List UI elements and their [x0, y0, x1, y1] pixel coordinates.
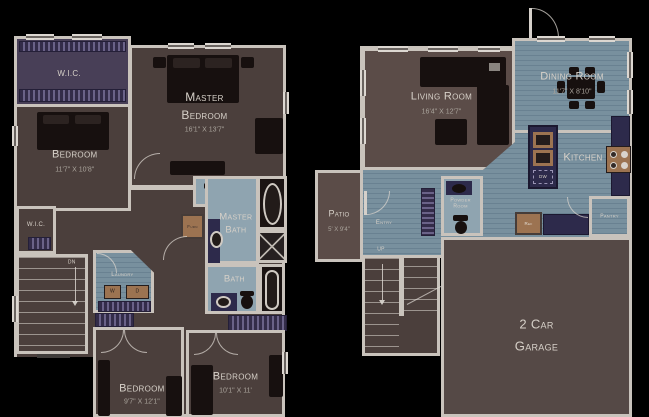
window: [478, 46, 500, 52]
nightstand: [153, 57, 166, 68]
window: [589, 36, 615, 42]
room-label-wic-top: W.I.C.: [57, 70, 81, 78]
sink-icon: [452, 184, 466, 193]
exterior-cutout: [12, 357, 93, 417]
room-label-bath: Bath: [224, 275, 245, 285]
room-label-patio: Patio: [328, 210, 349, 219]
bed: [166, 376, 182, 416]
window: [428, 46, 458, 52]
sink-icon: [210, 231, 223, 248]
pillow: [43, 115, 69, 124]
dryer-letter: D: [136, 290, 140, 295]
window: [282, 352, 288, 374]
pillow: [205, 58, 232, 68]
window: [12, 126, 18, 146]
stairs-up: [362, 255, 440, 356]
window: [205, 43, 231, 49]
bed: [191, 365, 213, 415]
arrow-down-icon: [72, 301, 78, 306]
bathtub-icon: [263, 183, 282, 225]
room-label-master-bath-1: Master: [219, 212, 252, 222]
closet-rack-icon: [98, 301, 151, 312]
furnace-label: Furn: [187, 224, 197, 229]
stairs-arrow-line: [75, 267, 76, 301]
window: [360, 70, 366, 96]
sink-icon: [216, 296, 231, 308]
room-powder: Powder Room: [441, 176, 483, 236]
window: [283, 92, 289, 114]
dresser: [269, 355, 283, 397]
washer-letter: W: [110, 290, 115, 295]
tv-icon: [489, 63, 500, 71]
pillow: [75, 115, 101, 124]
closet-rack-icon: [28, 237, 51, 250]
door-arc: [532, 8, 559, 38]
window: [378, 46, 408, 52]
toilet-icon: [241, 295, 253, 309]
room-label-living: Living Room: [411, 92, 472, 103]
room-bath: Bath: [205, 264, 259, 314]
room-label-powder-1: Powder: [450, 198, 470, 203]
stairs-up-label: UP: [377, 248, 385, 253]
dishwasher-label: DW: [539, 175, 547, 180]
room-label-dining: Dining Room: [540, 72, 604, 83]
sofa: [477, 85, 509, 145]
room-label-garage-1: 2 Car: [519, 317, 553, 330]
ottoman: [435, 119, 467, 145]
window: [537, 36, 565, 42]
refrigerator-label: Ref: [525, 221, 533, 226]
room-bedroom-left: Bedroom 11'7" X 10'8": [14, 104, 131, 211]
dishwasher-icon: DW: [533, 170, 553, 184]
room-wic-small: W.I.C.: [16, 206, 56, 254]
stairs-down: DN: [16, 254, 88, 354]
closet-rack-icon: [19, 41, 126, 52]
stairs-arrow-line: [382, 264, 383, 300]
room-pantry: Pantry: [589, 196, 630, 237]
room-dims-bedroom-br: 10'1" X 11': [219, 387, 252, 394]
room-master-tub: [257, 176, 287, 230]
room-patio: Patio 5' X 9'4": [315, 170, 363, 262]
hall-closet-rack-icon: [228, 315, 287, 331]
arrow-down-icon: [379, 300, 385, 305]
room-label-garage-2: Garage: [515, 340, 558, 353]
room-label-bedroom-left: Bedroom: [52, 150, 97, 161]
shower-icon: [257, 230, 287, 263]
window: [627, 52, 633, 78]
room-label-entry: Entry: [376, 220, 392, 226]
nightstand: [241, 57, 254, 68]
bench: [170, 161, 225, 175]
window: [12, 296, 18, 322]
burner-icon: [610, 162, 617, 169]
coat-closet-rack-icon: [421, 188, 435, 236]
refrigerator-icon: Ref: [515, 212, 542, 235]
dresser: [255, 118, 283, 154]
window: [627, 90, 633, 114]
room-label-master-bedroom-2: Bedroom: [181, 109, 227, 121]
room-label-master-bedroom-1: Master: [185, 91, 223, 103]
window: [26, 34, 54, 40]
burner-icon: [621, 151, 628, 158]
window: [168, 43, 194, 49]
toilet-icon: [455, 221, 467, 234]
room-dims-bedroom-bl: 9'7" X 12'1": [124, 399, 160, 406]
bathtub-icon: [265, 270, 279, 310]
room-label-master-bath-2: Bath: [225, 225, 246, 235]
dresser: [98, 360, 110, 416]
room-dims-bedroom-left: 11'7" X 10'8": [55, 166, 94, 173]
stove-icon: [606, 146, 631, 173]
washer-icon: W: [104, 285, 121, 299]
window: [72, 34, 102, 40]
window: [360, 118, 366, 144]
room-dims-living: 16'4" X 12'7": [422, 109, 462, 116]
chair: [569, 101, 579, 109]
room-label-kitchen: Kitchen: [563, 153, 602, 164]
closet-rack-icon: [19, 89, 126, 102]
dryer-icon: D: [126, 285, 149, 299]
room-label-powder-2: Room: [453, 205, 467, 210]
kitchen-island: DW: [528, 125, 558, 189]
burner-icon: [621, 162, 628, 169]
room-label-bedroom-bl: Bedroom: [119, 383, 164, 394]
room-living: Living Room 16'4" X 12'7": [362, 48, 515, 170]
toilet-tank: [240, 291, 254, 296]
hall-closet-rack-icon: [95, 313, 134, 327]
room-wic-top: W.I.C.: [14, 36, 131, 107]
room-label-bedroom-br: Bedroom: [213, 371, 258, 382]
room-dims-master-bedroom: 16'1" X 13'7": [185, 127, 225, 134]
sofa: [420, 57, 506, 87]
sink-icon: [533, 132, 553, 148]
pillow: [173, 58, 200, 68]
sink-icon: [533, 150, 553, 166]
stairs-down-label: DN: [68, 261, 76, 266]
burner-icon: [610, 151, 617, 158]
chair: [585, 101, 595, 109]
room-garage: 2 Car Garage: [441, 237, 632, 417]
room-master-bath: Master Bath: [205, 176, 259, 264]
room-dims-patio: 5' X 9'4": [328, 227, 350, 233]
floor-plan-canvas: W.I.C. Bedroom 11'7" X 10'8" Master Bedr…: [0, 0, 649, 417]
room-bath-tub: [259, 264, 285, 314]
room-label-pantry: Pantry: [600, 215, 619, 220]
room-label-wic-small: W.I.C.: [27, 222, 45, 228]
room-dims-dining: 11'7" X 8'10": [552, 88, 591, 95]
